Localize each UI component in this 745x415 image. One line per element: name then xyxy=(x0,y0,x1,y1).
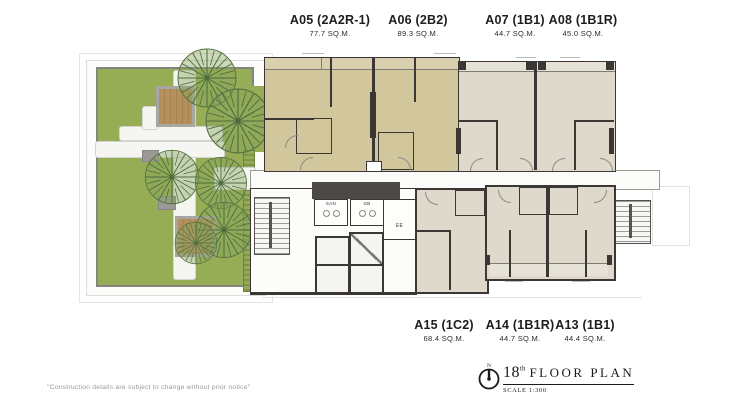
room-gb: GB xyxy=(350,199,384,226)
unit-name: A06 (2B2) xyxy=(388,13,447,27)
tree-icon xyxy=(145,150,198,203)
stairs-west xyxy=(254,197,290,255)
elevator-2 xyxy=(315,264,350,294)
label-unit-a08: A08 (1B1R) 45.0 SQ.M. xyxy=(549,13,618,38)
wall-post xyxy=(606,61,614,70)
tree-icon xyxy=(175,222,217,264)
north-arrow-icon: N xyxy=(475,361,503,393)
fixture-icon xyxy=(323,210,330,217)
floor-plan-title: 18th FLOOR PLAN xyxy=(503,364,634,385)
balcony-strip xyxy=(265,58,459,70)
service-shaft xyxy=(312,182,400,199)
wall-post xyxy=(370,92,376,138)
room-san: SAN xyxy=(314,199,348,226)
wall-post xyxy=(609,128,614,154)
label-unit-a07: A07 (1B1) 44.7 SQ.M. xyxy=(485,13,544,38)
dimension-mark xyxy=(434,53,456,54)
dimension-mark xyxy=(560,57,580,58)
unit-area: 44.7 SQ.M. xyxy=(486,334,555,343)
dimension-mark xyxy=(505,281,523,282)
fixture-icon xyxy=(369,210,376,217)
unit-name: A07 (1B1) xyxy=(485,13,544,27)
interior-wall xyxy=(574,120,576,170)
floor-number: 18 xyxy=(503,364,520,381)
unit-area: 44.7 SQ.M. xyxy=(485,29,544,38)
interior-wall xyxy=(585,230,587,277)
dimension-mark xyxy=(572,281,590,282)
party-wall-a07-a08 xyxy=(534,61,537,170)
floor-plan-page: A05 (2A2R-1) 77.7 SQ.M. A06 (2B2) 89.3 S… xyxy=(0,0,745,415)
interior-wall xyxy=(330,57,332,107)
bathroom-a05 xyxy=(296,118,332,154)
label-unit-a13: A13 (1B1) 44.4 SQ.M. xyxy=(555,318,614,343)
interior-wall xyxy=(414,57,416,102)
interior-wall xyxy=(509,230,511,277)
elevator-1 xyxy=(315,236,350,266)
interior-wall xyxy=(496,120,498,170)
interior-wall xyxy=(458,120,498,122)
tree-icon xyxy=(195,157,246,208)
bathroom-a15 xyxy=(455,190,485,216)
entry-door-mark xyxy=(366,161,382,172)
room-label-san: SAN xyxy=(315,202,347,207)
wall-post xyxy=(456,128,461,154)
disclaimer-text: "Construction details are subject to cha… xyxy=(47,384,250,391)
unit-name: A14 (1B1R) xyxy=(486,318,555,332)
unit-area: 68.4 SQ.M. xyxy=(414,334,473,343)
dimension-mark xyxy=(516,57,536,58)
wall-post xyxy=(538,61,546,70)
balcony-divider xyxy=(321,58,322,69)
unit-area: 89.3 SQ.M. xyxy=(388,29,447,38)
bathroom-a13 xyxy=(549,187,578,215)
interior-wall xyxy=(574,120,614,122)
stairs-east xyxy=(613,200,651,244)
unit-shape-a07-a08 xyxy=(458,61,616,172)
dimension-mark xyxy=(302,53,324,54)
title-block: 18th FLOOR PLAN SCALE 1:300 xyxy=(503,364,634,394)
floor-ordinal: th xyxy=(520,365,525,373)
tree-icon xyxy=(206,89,270,153)
wall-post xyxy=(458,61,466,70)
stair-rail xyxy=(629,204,632,238)
room-label-ee: EE xyxy=(384,224,415,229)
fixture-icon xyxy=(359,210,366,217)
scale-label: SCALE 1:300 xyxy=(503,387,634,394)
bathroom-a14 xyxy=(519,187,548,215)
label-unit-a05: A05 (2A2R-1) 77.7 SQ.M. xyxy=(290,13,370,38)
label-unit-a15: A15 (1C2) 68.4 SQ.M. xyxy=(414,318,473,343)
unit-name: A13 (1B1) xyxy=(555,318,614,332)
label-unit-a14: A14 (1B1R) 44.7 SQ.M. xyxy=(486,318,555,343)
unit-name: A15 (1C2) xyxy=(414,318,473,332)
site-ledge-right xyxy=(652,186,690,246)
unit-name: A08 (1B1R) xyxy=(549,13,618,27)
unit-area: 44.4 SQ.M. xyxy=(555,334,614,343)
room-label-gb: GB xyxy=(351,202,383,207)
room-ee: EE xyxy=(383,199,416,240)
label-unit-a06: A06 (2B2) 89.3 SQ.M. xyxy=(388,13,447,38)
fixture-icon xyxy=(333,210,340,217)
unit-area: 77.7 SQ.M. xyxy=(290,29,370,38)
wall-post xyxy=(526,61,534,70)
unit-name: A05 (2A2R-1) xyxy=(290,13,370,27)
site-line-bottom xyxy=(262,297,642,298)
elevator-3 xyxy=(349,264,384,294)
unit-shape-a05-a06 xyxy=(264,57,460,172)
elevator-shaft xyxy=(349,232,384,266)
wall-post xyxy=(485,255,490,265)
interior-wall xyxy=(415,230,451,232)
wall-post xyxy=(607,255,612,265)
floor-plan-label: FLOOR PLAN xyxy=(529,365,634,380)
interior-wall xyxy=(449,232,451,290)
balcony-strip xyxy=(459,62,615,72)
stair-rail xyxy=(269,202,272,248)
north-letter: N xyxy=(487,363,491,369)
unit-area: 45.0 SQ.M. xyxy=(549,29,618,38)
